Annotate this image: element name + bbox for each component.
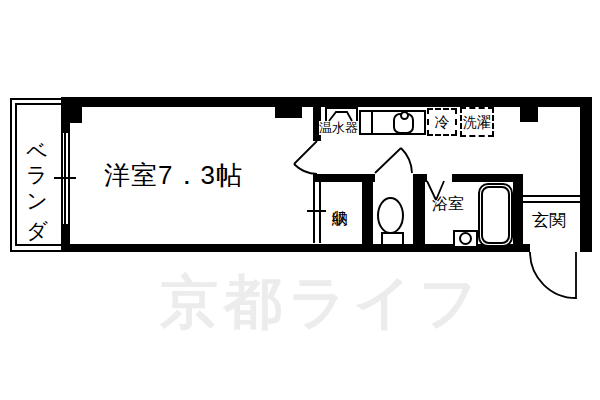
main-room-door-leaf	[294, 141, 317, 164]
wash-pan-drain	[459, 232, 472, 245]
washer-space: 洗濯	[460, 107, 494, 137]
wall-right	[580, 97, 592, 252]
washer-label: 洗濯	[463, 115, 491, 130]
pillar-top-mid	[275, 97, 302, 118]
floorplan: 京都ライフ ベランダ 洋室7．3帖 温水器 冷 洗濯 収納 浴室	[0, 0, 600, 400]
wall-closet-toilet	[362, 174, 373, 248]
veranda-label: ベランダ	[26, 127, 48, 230]
toilet-tank	[381, 232, 404, 246]
closet-sliding-door-line	[319, 182, 321, 243]
bathtub-inner	[481, 186, 510, 244]
toilet-bowl	[377, 197, 404, 234]
main-room-door-arc	[294, 164, 317, 174]
water-heater-label: 温水器	[319, 121, 358, 135]
wall-toilet-bath	[413, 174, 425, 248]
bathroom-label: 浴室	[432, 196, 464, 213]
fridge-space: 冷	[427, 108, 457, 136]
closet-sliding-door-line	[313, 182, 315, 243]
entrance-step-line	[523, 195, 580, 197]
faucet-icon	[400, 111, 409, 120]
wall-bath-entrance	[513, 174, 523, 252]
main-room-label: 洋室7．3帖	[104, 162, 243, 189]
watermark-text: 京都ライフ	[160, 264, 484, 342]
pillar-top-left	[62, 97, 82, 123]
entrance-step-line	[523, 201, 580, 203]
pillar-top-right	[520, 97, 538, 122]
entrance-door-arc	[530, 252, 576, 298]
closet-door-tick	[307, 210, 326, 212]
closet-label: 収納	[331, 197, 348, 199]
fridge-label: 冷	[435, 114, 450, 130]
counter-divider	[371, 110, 373, 135]
window-tick	[54, 177, 76, 179]
wall-left-lower	[61, 224, 70, 252]
toilet-door-leaf	[375, 148, 401, 173]
wall-top	[62, 97, 592, 107]
entrance-label: 玄関	[532, 212, 566, 230]
toilet-door-arc	[401, 148, 412, 173]
